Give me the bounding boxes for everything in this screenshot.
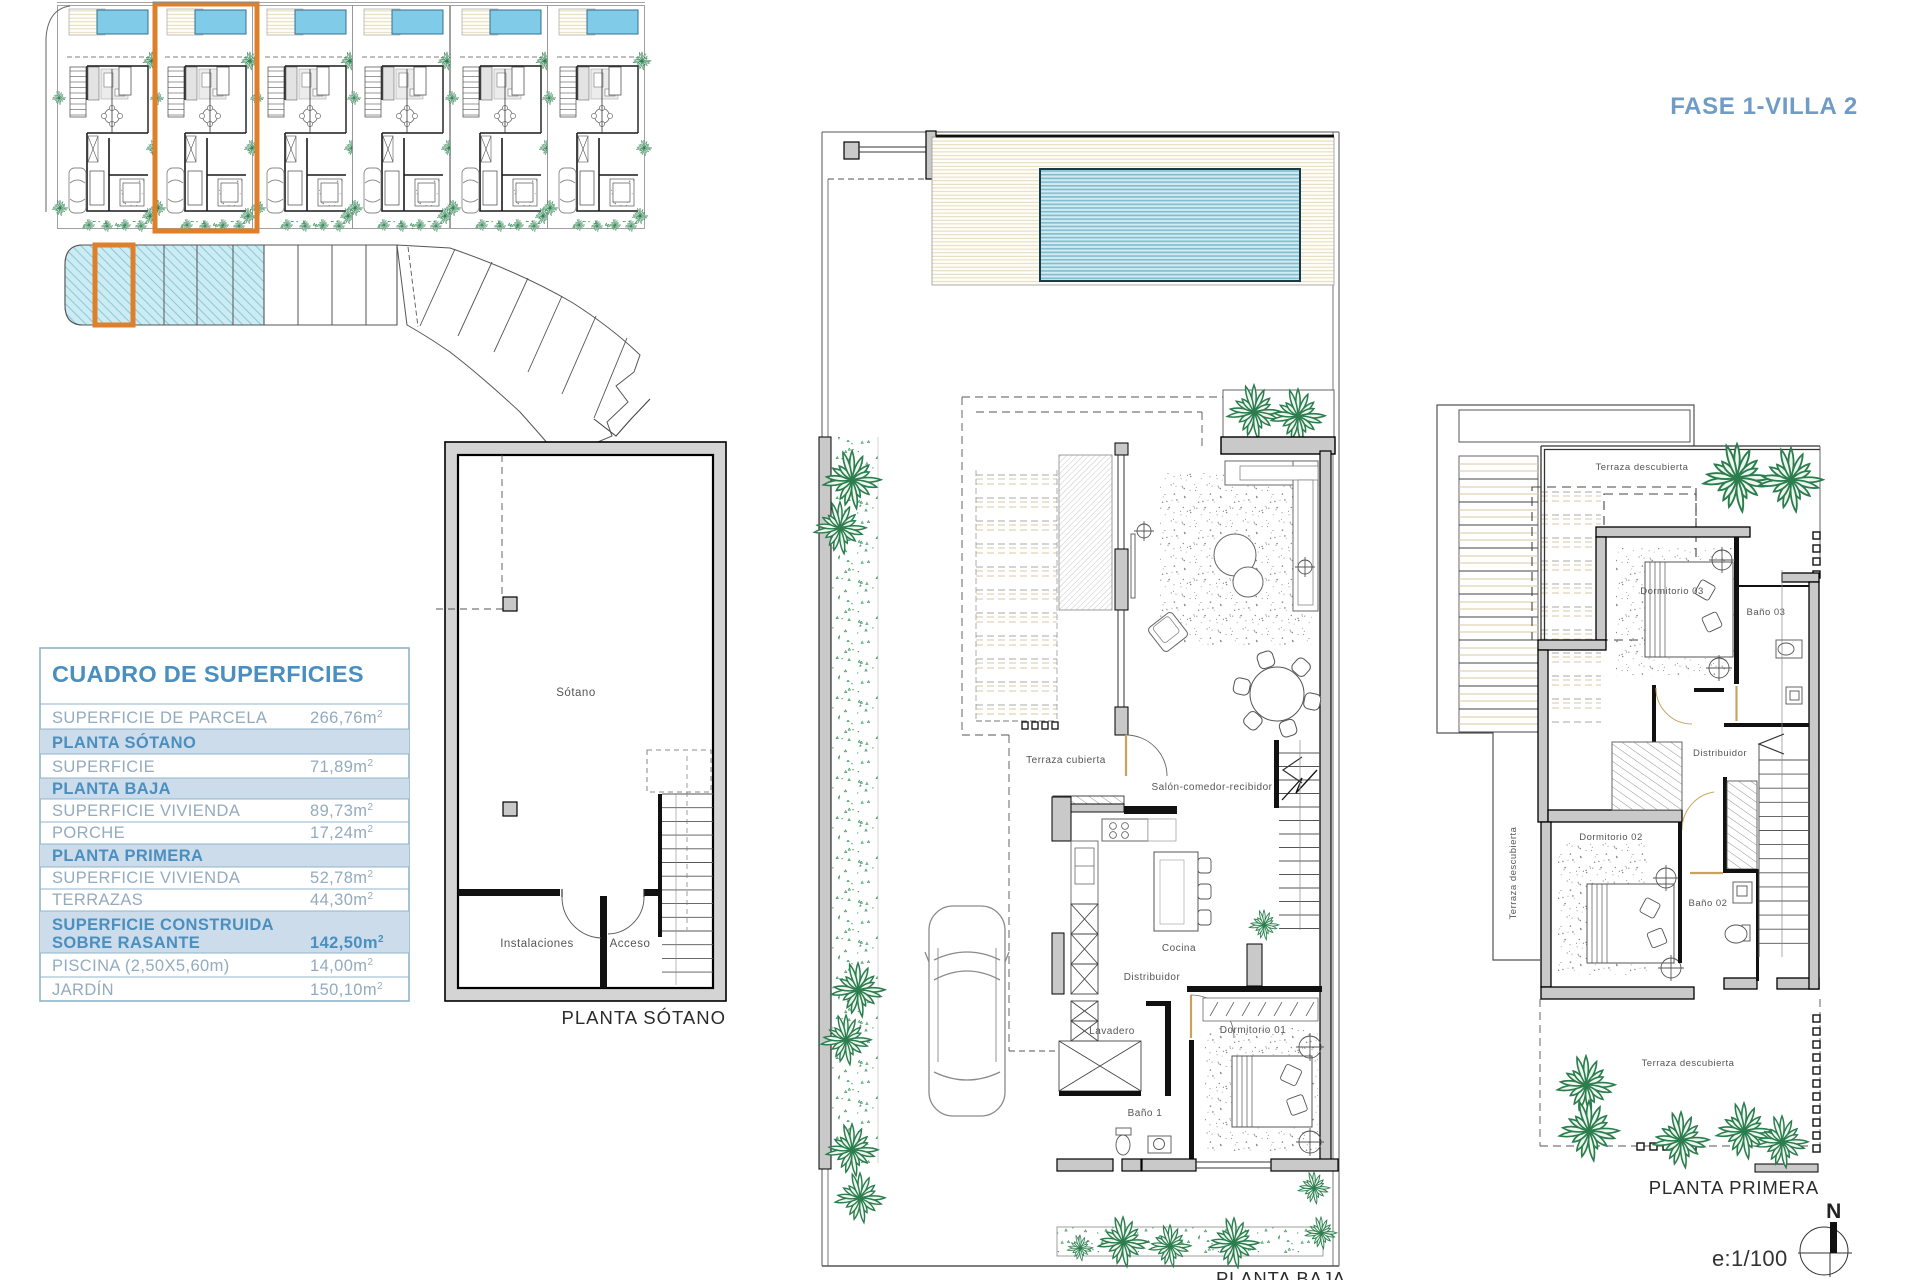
svg-text:266,76m2: 266,76m2 bbox=[310, 709, 383, 727]
svg-text:Baño 03: Baño 03 bbox=[1747, 607, 1786, 618]
svg-text:PLANTA SÓTANO: PLANTA SÓTANO bbox=[52, 733, 196, 752]
svg-text:142,50m2: 142,50m2 bbox=[310, 934, 384, 952]
svg-text:17,24m2: 17,24m2 bbox=[310, 824, 373, 842]
svg-text:Acceso: Acceso bbox=[610, 938, 651, 950]
svg-text:SUPERFICIE VIVIENDA: SUPERFICIE VIVIENDA bbox=[52, 869, 240, 887]
svg-text:e:1/100: e:1/100 bbox=[1712, 1246, 1788, 1271]
svg-text:PLANTA PRIMERA: PLANTA PRIMERA bbox=[1649, 1177, 1819, 1198]
svg-text:Sótano: Sótano bbox=[556, 687, 595, 699]
svg-text:Dormitorio 02: Dormitorio 02 bbox=[1579, 832, 1643, 843]
svg-text:Distribuidor: Distribuidor bbox=[1124, 972, 1181, 983]
svg-text:TERRAZAS: TERRAZAS bbox=[52, 891, 143, 909]
svg-text:52,78m2: 52,78m2 bbox=[310, 869, 373, 887]
svg-text:PLANTA SÓTANO: PLANTA SÓTANO bbox=[562, 1007, 726, 1028]
svg-text:89,73m2: 89,73m2 bbox=[310, 802, 373, 820]
svg-text:Terraza descubierta: Terraza descubierta bbox=[1508, 826, 1519, 919]
svg-text:Terraza descubierta: Terraza descubierta bbox=[1596, 462, 1689, 473]
svg-text:FASE 1-VILLA 2: FASE 1-VILLA 2 bbox=[1670, 93, 1858, 120]
svg-text:Salón-comedor-recibidor: Salón-comedor-recibidor bbox=[1152, 782, 1273, 793]
svg-text:71,89m2: 71,89m2 bbox=[310, 758, 373, 776]
svg-text:Cocina: Cocina bbox=[1162, 943, 1196, 954]
svg-text:Baño 02: Baño 02 bbox=[1689, 898, 1728, 909]
svg-text:SUPERFICIE CONSTRUIDA: SUPERFICIE CONSTRUIDA bbox=[52, 916, 274, 934]
svg-text:Distribuidor: Distribuidor bbox=[1693, 748, 1747, 759]
svg-text:44,30m2: 44,30m2 bbox=[310, 891, 373, 909]
svg-text:PLANTA BAJA: PLANTA BAJA bbox=[1216, 1268, 1346, 1280]
svg-text:SUPERFICIE DE PARCELA: SUPERFICIE DE PARCELA bbox=[52, 709, 267, 727]
svg-text:PLANTA BAJA: PLANTA BAJA bbox=[52, 780, 171, 798]
svg-text:JARDÍN: JARDÍN bbox=[52, 980, 114, 999]
svg-text:150,10m2: 150,10m2 bbox=[310, 981, 383, 999]
svg-text:Lavadero: Lavadero bbox=[1089, 1026, 1135, 1037]
svg-text:N: N bbox=[1826, 1200, 1842, 1223]
svg-text:Baño 1: Baño 1 bbox=[1128, 1108, 1163, 1119]
svg-text:Terraza descubierta: Terraza descubierta bbox=[1642, 1058, 1735, 1069]
svg-text:SUPERFICIE VIVIENDA: SUPERFICIE VIVIENDA bbox=[52, 802, 240, 820]
svg-text:Dormitorio 01: Dormitorio 01 bbox=[1220, 1025, 1287, 1036]
svg-text:PISCINA (2,50X5,60m): PISCINA (2,50X5,60m) bbox=[52, 957, 230, 975]
svg-text:PLANTA PRIMERA: PLANTA PRIMERA bbox=[52, 847, 203, 865]
svg-text:Instalaciones: Instalaciones bbox=[500, 938, 574, 950]
svg-text:PORCHE: PORCHE bbox=[52, 824, 125, 842]
svg-text:SUPERFICIE: SUPERFICIE bbox=[52, 758, 155, 776]
svg-text:SOBRE RASANTE: SOBRE RASANTE bbox=[52, 934, 200, 952]
svg-text:CUADRO DE SUPERFICIES: CUADRO DE SUPERFICIES bbox=[52, 661, 364, 687]
svg-text:Terraza cubierta: Terraza cubierta bbox=[1026, 755, 1106, 766]
svg-text:Dormitorio 03: Dormitorio 03 bbox=[1640, 586, 1704, 597]
svg-text:14,00m2: 14,00m2 bbox=[310, 957, 373, 975]
